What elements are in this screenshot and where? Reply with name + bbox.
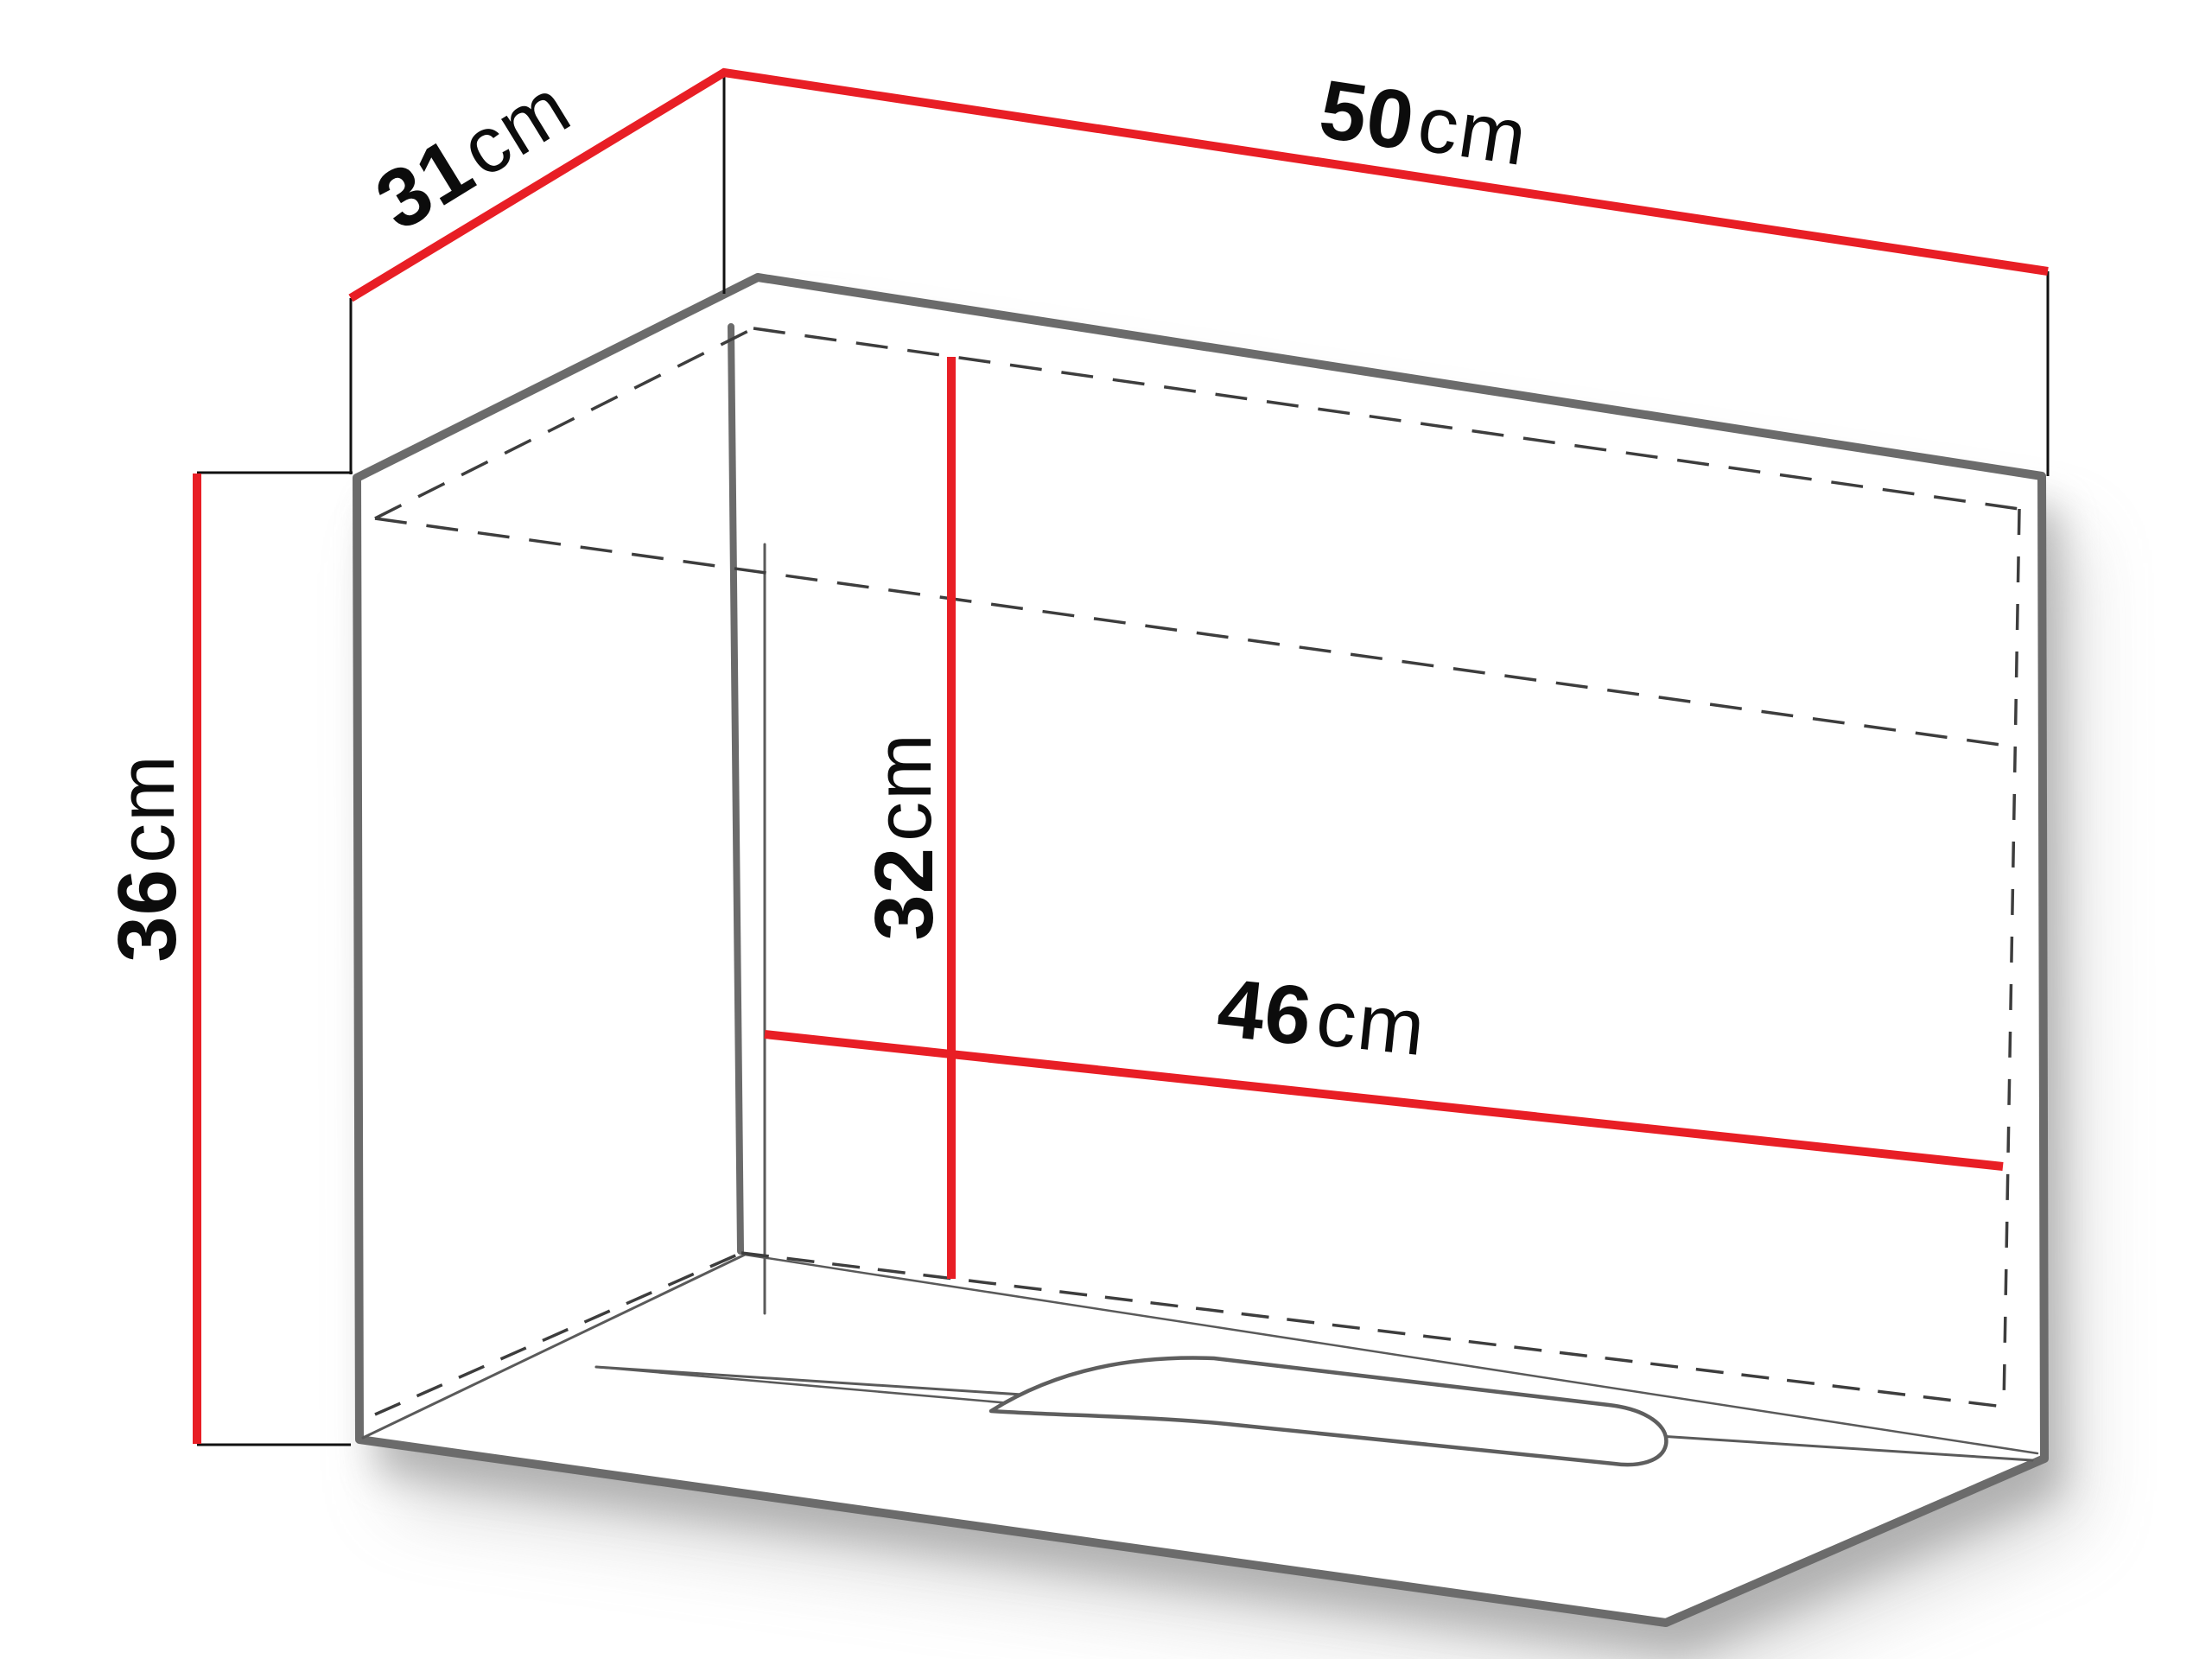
cabinet-diagram-canvas: 50cm 31cm 36cm 32cm 46cm <box>0 0 2212 1659</box>
label-height-36cm: 36cm <box>101 753 194 962</box>
dimension-diagram: 50cm 31cm 36cm 32cm 46cm <box>0 0 2212 1659</box>
dimension-line-depth-and-width <box>351 73 2048 298</box>
label-inner-height-32cm: 32cm <box>858 732 950 940</box>
